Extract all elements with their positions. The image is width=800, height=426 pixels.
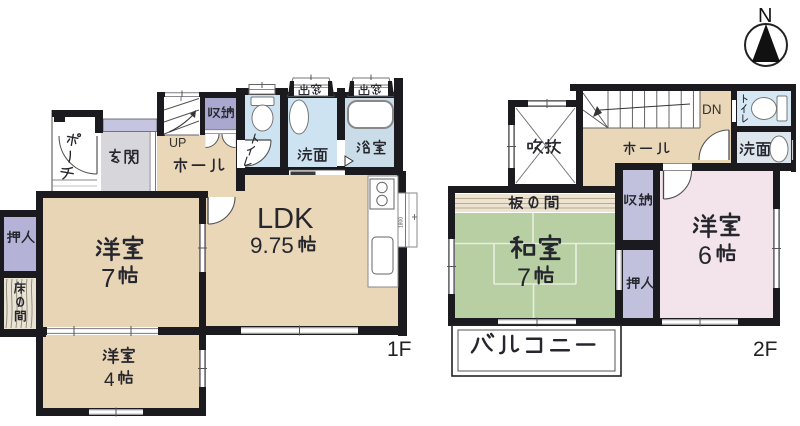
svg-text:7: 7 xyxy=(517,264,531,292)
svg-text:2F: 2F xyxy=(753,338,778,361)
svg-text:N: N xyxy=(758,5,772,27)
svg-text:4: 4 xyxy=(104,370,115,391)
svg-text:6: 6 xyxy=(698,242,712,270)
svg-text:1800: 1800 xyxy=(399,217,405,228)
svg-text:UP: UP xyxy=(169,136,186,150)
svg-text:DN: DN xyxy=(702,102,722,117)
svg-text:LDK: LDK xyxy=(257,203,314,235)
svg-text:9.75: 9.75 xyxy=(250,233,294,258)
svg-text:7: 7 xyxy=(101,263,115,293)
svg-text:1F: 1F xyxy=(387,338,412,361)
